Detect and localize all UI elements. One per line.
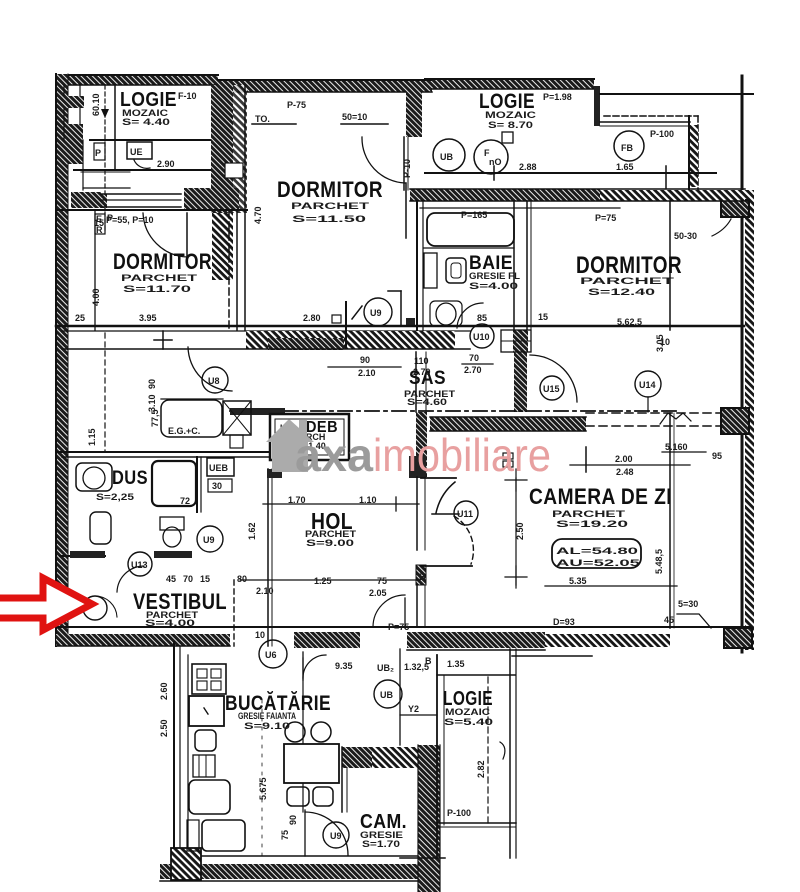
svg-text:1.10: 1.10	[359, 495, 377, 505]
svg-text:S= 4.40: S= 4.40	[122, 117, 170, 127]
svg-text:B: B	[425, 656, 432, 666]
svg-text:P-10: P-10	[402, 159, 412, 178]
svg-text:5.160: 5.160	[665, 442, 688, 452]
svg-text:P=75: P=75	[595, 213, 616, 223]
svg-text:Y2: Y2	[408, 704, 419, 714]
svg-text:2.05: 2.05	[369, 588, 387, 598]
svg-text:UEB: UEB	[209, 463, 229, 473]
svg-text:DORMITOR: DORMITOR	[576, 252, 682, 279]
svg-text:75: 75	[377, 576, 387, 586]
svg-text:2.50: 2.50	[159, 719, 169, 737]
svg-text:AU=52.05: AU=52.05	[556, 558, 640, 568]
svg-text:P=75: P=75	[388, 622, 409, 632]
svg-text:2.90: 2.90	[157, 159, 175, 169]
svg-text:5.35: 5.35	[569, 576, 587, 586]
svg-text:U11: U11	[457, 509, 473, 519]
svg-text:S=4.00: S=4.00	[469, 281, 518, 291]
svg-text:UE: UE	[130, 147, 143, 157]
svg-text:95: 95	[712, 451, 722, 461]
svg-text:1.35: 1.35	[447, 659, 465, 669]
svg-text:9.35: 9.35	[335, 661, 353, 671]
svg-text:nO: nO	[489, 157, 502, 167]
svg-text:S= 8.70: S= 8.70	[488, 120, 533, 130]
svg-text:UB₂: UB₂	[377, 663, 394, 673]
svg-text:P-100: P-100	[650, 129, 674, 139]
svg-text:FB: FB	[621, 143, 633, 153]
svg-text:imobiliare: imobiliare	[373, 429, 551, 481]
svg-text:10: 10	[255, 630, 265, 640]
svg-text:U15: U15	[543, 384, 560, 394]
svg-text:4.00: 4.00	[91, 288, 101, 306]
svg-text:4.70: 4.70	[253, 206, 263, 224]
svg-text:DORMITOR: DORMITOR	[277, 177, 383, 202]
svg-text:50=10: 50=10	[342, 112, 367, 122]
svg-text:2.70: 2.70	[464, 365, 482, 375]
svg-text:1.15: 1.15	[87, 428, 97, 446]
svg-text:axa: axa	[295, 429, 373, 481]
svg-text:3.10: 3.10	[147, 394, 157, 412]
svg-text:90: 90	[147, 379, 157, 389]
svg-text:PARCHET: PARCHET	[121, 273, 198, 283]
svg-text:90: 90	[360, 355, 370, 365]
svg-text:S=11.50: S=11.50	[292, 214, 366, 224]
svg-text:80: 80	[237, 574, 247, 584]
svg-text:15: 15	[538, 312, 548, 322]
svg-text:45: 45	[664, 615, 674, 625]
svg-text:85: 85	[477, 313, 487, 323]
svg-text:E: E	[96, 214, 102, 224]
svg-text:75: 75	[280, 830, 290, 840]
svg-text:5.48,5: 5.48,5	[654, 549, 664, 574]
svg-text:P=165: P=165	[461, 210, 487, 220]
svg-text:U9: U9	[370, 308, 382, 318]
svg-text:25: 25	[75, 313, 85, 323]
svg-text:72: 72	[180, 496, 190, 506]
svg-text:E.G.+C.: E.G.+C.	[168, 426, 200, 436]
svg-text:1.25: 1.25	[314, 576, 332, 586]
svg-text:P=1.98: P=1.98	[543, 92, 572, 102]
svg-text:5.675: 5.675	[258, 777, 268, 800]
svg-text:70: 70	[469, 353, 479, 363]
svg-text:S=9.10: S=9.10	[244, 721, 290, 731]
svg-text:2.10: 2.10	[256, 586, 274, 596]
svg-text:2.80: 2.80	[303, 313, 321, 323]
svg-text:1.62: 1.62	[247, 522, 257, 540]
svg-text:UB: UB	[440, 152, 453, 162]
svg-text:U10: U10	[473, 332, 490, 342]
svg-text:10: 10	[660, 337, 670, 347]
svg-text:2.60: 2.60	[159, 682, 169, 700]
svg-text:15: 15	[200, 574, 210, 584]
svg-text:U9: U9	[330, 831, 342, 841]
svg-text:R: R	[96, 225, 103, 235]
svg-text:S=4.00: S=4.00	[145, 618, 195, 628]
svg-text:GRESIE FAIANTA: GRESIE FAIANTA	[238, 711, 296, 721]
svg-text:D=93: D=93	[553, 617, 575, 627]
svg-text:DUS: DUS	[112, 468, 148, 489]
svg-text:S=12.40: S=12.40	[588, 287, 655, 297]
svg-text:PARCHET: PARCHET	[580, 276, 675, 286]
svg-text:S=11.70: S=11.70	[123, 284, 191, 294]
svg-text:2.10: 2.10	[358, 368, 376, 378]
svg-text:2.82: 2.82	[476, 760, 486, 778]
svg-text:MOZAIC: MOZAIC	[485, 110, 537, 120]
svg-text:90: 90	[288, 815, 298, 825]
svg-text:1.65: 1.65	[616, 162, 634, 172]
svg-text:U6: U6	[265, 650, 277, 660]
svg-text:DORMITOR: DORMITOR	[113, 249, 212, 274]
svg-text:TO.: TO.	[255, 114, 270, 124]
svg-text:GRESIE FL: GRESIE FL	[469, 271, 521, 281]
svg-text:S=19.20: S=19.20	[556, 519, 628, 529]
svg-text:2.00: 2.00	[615, 454, 633, 464]
svg-text:60.10: 60.10	[91, 93, 101, 116]
svg-text:CAMERA DE ZI: CAMERA DE ZI	[529, 484, 672, 509]
svg-text:S=2,25: S=2,25	[96, 492, 134, 502]
svg-text:2.88: 2.88	[519, 162, 537, 172]
svg-text:P=55, P=10: P=55, P=10	[106, 215, 154, 225]
svg-text:S=9.00: S=9.00	[306, 538, 354, 548]
svg-text:U9: U9	[203, 535, 215, 545]
svg-text:PARCHET: PARCHET	[291, 201, 370, 211]
svg-text:U8: U8	[208, 376, 220, 386]
svg-text:3.95: 3.95	[139, 313, 157, 323]
svg-text:1.70: 1.70	[288, 495, 306, 505]
svg-text:45: 45	[166, 574, 176, 584]
svg-text:77,5: 77,5	[150, 409, 160, 427]
svg-text:S=5.40: S=5.40	[444, 717, 493, 727]
svg-text:UB: UB	[380, 690, 393, 700]
svg-text:50-30: 50-30	[674, 231, 697, 241]
svg-text:30: 30	[212, 481, 222, 491]
svg-text:70: 70	[183, 574, 193, 584]
svg-text:P: P	[95, 148, 101, 158]
svg-text:P-100: P-100	[447, 808, 471, 818]
svg-text:S=4.60: S=4.60	[407, 397, 447, 407]
svg-text:AL=54.80: AL=54.80	[556, 546, 638, 556]
svg-text:P-75: P-75	[287, 100, 306, 110]
svg-text:MOZAIC: MOZAIC	[445, 707, 491, 717]
svg-text:2.48: 2.48	[616, 467, 634, 477]
svg-text:5=30: 5=30	[678, 599, 698, 609]
svg-text:U14: U14	[639, 380, 656, 390]
svg-text:F-10: F-10	[178, 91, 197, 101]
svg-text:S=1.70: S=1.70	[362, 839, 400, 849]
svg-text:PARCHET: PARCHET	[552, 509, 626, 519]
